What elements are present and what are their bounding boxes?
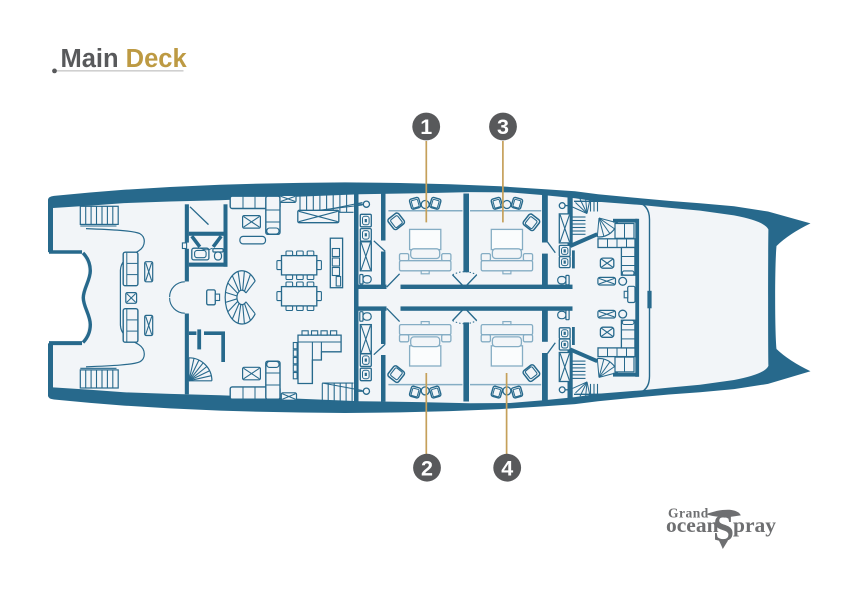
svg-text:3: 3 xyxy=(497,115,509,139)
svg-text:4: 4 xyxy=(501,456,513,480)
svg-text:Main Deck: Main Deck xyxy=(61,45,188,73)
svg-text:1: 1 xyxy=(420,115,432,139)
svg-text:2: 2 xyxy=(421,456,433,480)
svg-text:ocean: ocean xyxy=(666,513,719,537)
svg-text:pray: pray xyxy=(733,513,776,537)
